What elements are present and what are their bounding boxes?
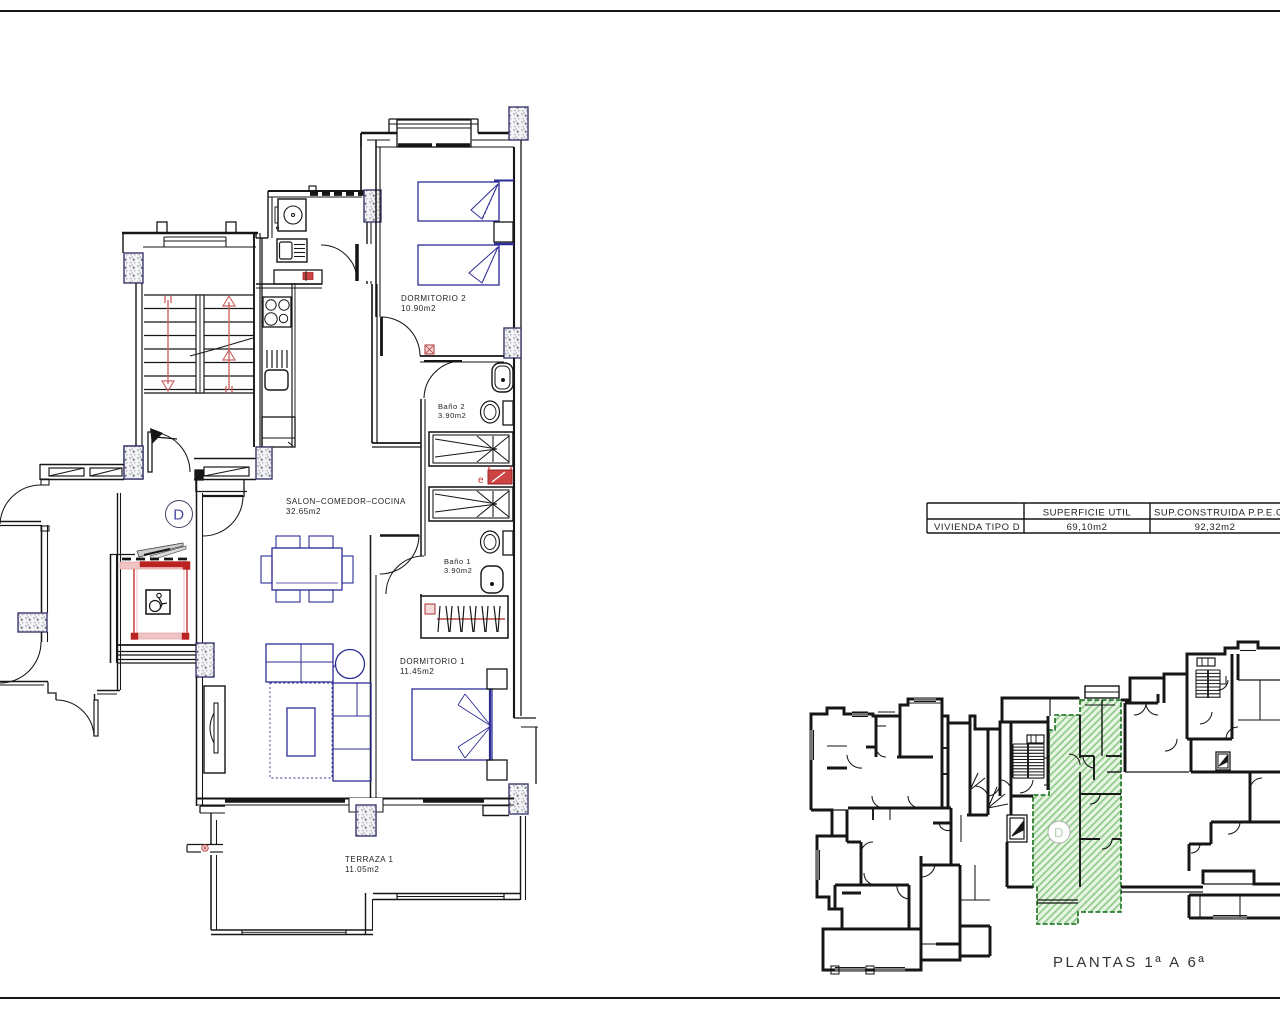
svg-text:3.90m2: 3.90m2 <box>438 411 466 420</box>
svg-text:10.90m2: 10.90m2 <box>401 304 436 313</box>
svg-text:TERRAZA 1: TERRAZA 1 <box>345 855 394 864</box>
svg-text:92,32m2: 92,32m2 <box>1195 522 1236 533</box>
svg-text:Baño 1: Baño 1 <box>444 557 471 566</box>
svg-text:32.65m2: 32.65m2 <box>286 507 321 516</box>
svg-text:SALON–COMEDOR–COCINA: SALON–COMEDOR–COCINA <box>286 497 406 506</box>
svg-text:D: D <box>173 507 184 524</box>
svg-text:DORMITORIO 1: DORMITORIO 1 <box>400 657 465 666</box>
svg-text:DORMITORIO 2: DORMITORIO 2 <box>401 294 466 303</box>
svg-text:3.90m2: 3.90m2 <box>444 566 472 575</box>
svg-text:D: D <box>1054 825 1064 840</box>
svg-text:11.05m2: 11.05m2 <box>345 865 379 874</box>
svg-text:VIVIENDA TIPO D: VIVIENDA TIPO D <box>934 522 1020 533</box>
svg-text:SUP.CONSTRUIDA P.P.E.C: SUP.CONSTRUIDA P.P.E.C <box>1154 508 1280 519</box>
svg-text:69,10m2: 69,10m2 <box>1067 522 1108 533</box>
svg-text:e: e <box>478 475 484 486</box>
svg-text:11.45m2: 11.45m2 <box>400 667 434 676</box>
svg-text:PLANTAS 1ª A 6ª: PLANTAS 1ª A 6ª <box>1053 954 1206 971</box>
svg-text:SUPERFICIE UTIL: SUPERFICIE UTIL <box>1043 508 1132 519</box>
svg-text:Baño 2: Baño 2 <box>438 402 465 411</box>
